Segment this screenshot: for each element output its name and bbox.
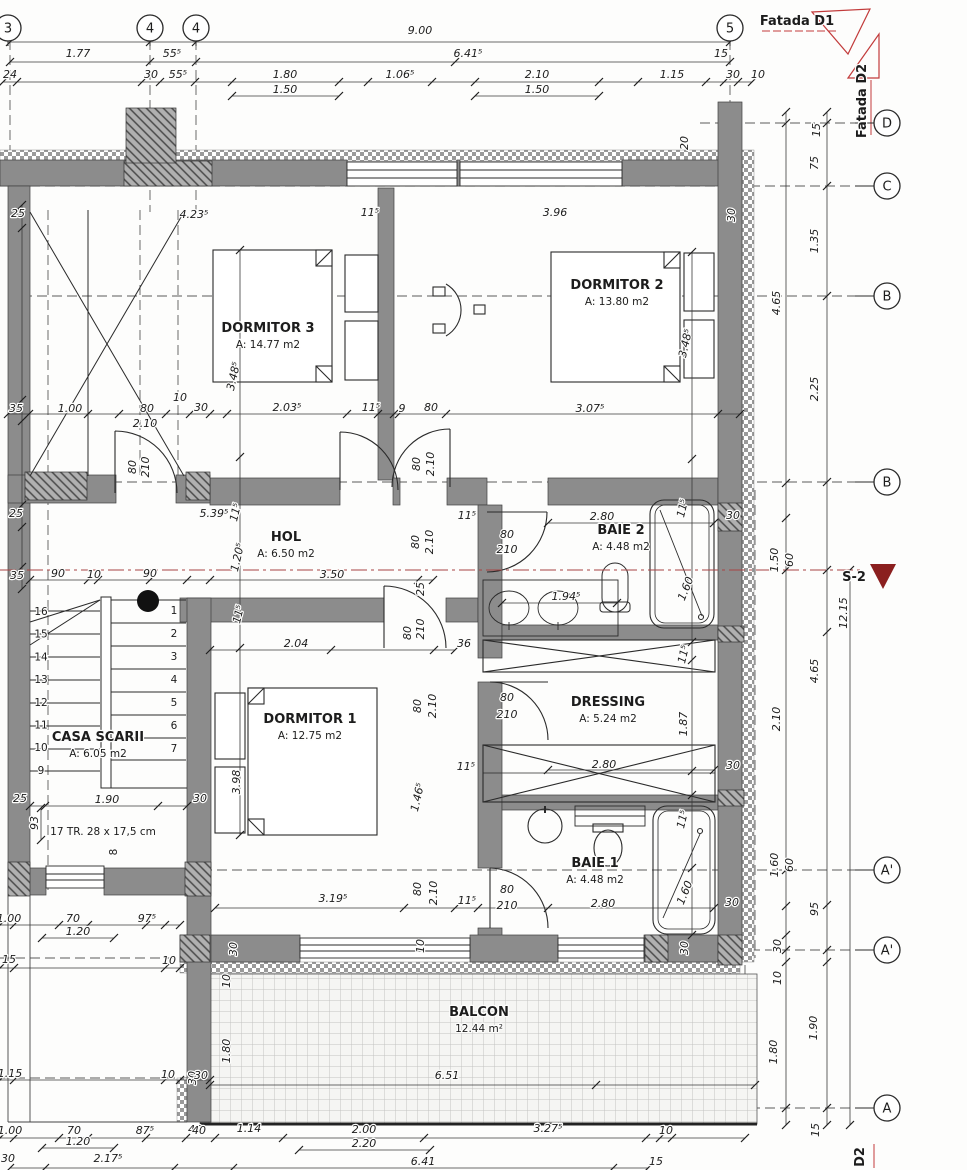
dim-label: 1.80 [220,1039,233,1064]
room-area-label: A: 6.50 m2 [257,548,315,560]
dim-label: 80 [500,883,514,896]
dim-label: 30 [678,941,691,955]
bed-dormitor-2 [551,252,714,382]
dim-label: 2.10 [424,452,437,477]
dim-label: 80 [500,528,514,541]
dim-label: 36 [457,637,471,650]
dim-label: 9.00 [408,24,433,37]
window-bottom-right [558,938,644,958]
dim-label: 2.25 [808,377,821,402]
dim-label: 11⁵ [674,498,691,519]
dim-label: 10 [771,971,784,985]
dim-label: 3.27⁵ [534,1122,563,1135]
stair-number: 14 [34,651,48,663]
dim-label: 15 [810,123,823,137]
dim-label: 20 [678,136,691,150]
dim-label: 210 [497,899,518,912]
dim-label: 35 [10,569,24,582]
grid-bubble-label: B [883,290,892,305]
dim-label: 1.20 [66,1135,91,1148]
dim-label: 5.39⁵ [200,507,229,520]
dim-tick [41,1164,49,1170]
grid-bubble-label: D [882,117,892,132]
dim-label: 87⁵ [136,1124,154,1137]
dim-label: 11⁵ [361,206,379,219]
dim-label: 15 [714,47,728,60]
dim-label: 9 [399,402,406,415]
stair-number: 16 [34,606,48,618]
room-label: DRESSING [571,695,645,710]
furniture [213,250,715,934]
room-label: BAIE 2 [597,523,644,538]
floor-plan-drawing: 9.001.7755⁵6.41⁵15243055⁵1.801.06⁵2.101.… [0,0,967,1170]
dim-label: 1.00 [58,402,83,415]
dim-label: 11⁵ [362,401,380,414]
dim-label: 4.65 [770,291,783,316]
dim-label: 80 [500,691,514,704]
stair-number: 5 [171,697,178,709]
room-label: DORMITOR 2 [570,278,663,293]
section-d2-label: D2 [853,1147,868,1167]
dim-label: 30 [725,208,738,222]
grid-bubble-label: A' [881,944,893,959]
dim-label: 6.51 [435,1069,460,1082]
balcony-door-window [300,938,470,958]
stair-number: 3 [171,651,178,663]
dim-label: 30 [726,759,740,772]
dim-label: 1.90 [95,793,120,806]
dim-label: 1.06⁵ [386,68,415,81]
sink-baie-1 [528,806,562,843]
dim-label: 2.10 [770,707,783,732]
fatada-d1-label: Fatada D1 [760,14,834,29]
dim-label: 2.80 [592,758,617,771]
dim-label: 2.10 [426,694,439,719]
dim-label: 55⁵ [163,47,181,60]
grid-bubble-label: A' [881,864,893,879]
dim-label: 1.80 [767,1040,780,1065]
fatada-d2-label: Fatada D2 [855,64,870,138]
dim-label: 2.10 [133,417,158,430]
dim-label: 2.00 [352,1123,377,1136]
dim-label: 60 [783,553,796,567]
stairs-area-label: A: 6.05 m2 [69,748,127,760]
room-label: DORMITOR 1 [263,712,356,727]
section-triangle-s2 [870,564,896,589]
room-area-label: A: 13.80 m2 [585,296,649,308]
dim-label: 3.19⁵ [319,892,348,905]
dim-label: 11⁵ [457,760,475,773]
terrace-outline [8,895,187,1122]
dim-label: 35 [9,402,23,415]
stair-number: 7 [171,743,178,755]
room-label: DORMITOR 3 [221,321,314,336]
dim-label: 1.87 [677,712,690,737]
dim-label: 1.80 [273,68,298,81]
balcony-floor [200,974,757,1124]
dim-label: 10 [162,954,176,967]
dim-label: 1.50 [768,548,781,573]
desk-chair [433,284,485,336]
grid-bubble-label: 4 [146,22,154,37]
grid-bubble-label: B [883,476,892,491]
grid-bubble-label: 3 [4,22,12,37]
dim-label: 15 [809,1123,822,1137]
dim-label: 70 [66,912,80,925]
room-area-label: A: 14.77 m2 [236,339,300,351]
dim-label: 30 [194,401,208,414]
dim-label: 10 [751,68,765,81]
dim-label: 80 [411,882,424,896]
dim-label: 30 [726,509,740,522]
dim-label: 15 [649,1155,663,1168]
dim-label: 15 [2,953,16,966]
dim-label: 210 [497,708,518,721]
dim-label: 11⁵ [674,809,691,830]
dim-label: 1.15 [660,68,685,81]
dim-label: 25 [414,582,427,596]
room-label: BAIE 1 [571,856,618,871]
door-baie-1 [490,868,548,928]
dim-label: 3.98 [230,770,243,795]
stair-number: 1 [171,605,178,617]
dim-label: 80 [401,626,414,640]
dim-label: 11⁵ [458,509,476,522]
dim-label: 60 [783,858,796,872]
dim-label: 3.07⁵ [576,402,605,415]
stair-number: 6 [171,720,178,732]
dim-label: 2.04 [284,637,309,650]
grid-bubble-label: C [882,180,891,195]
dim-label: 1.77 [66,47,91,60]
window-top-left [347,162,457,186]
bed-dormitor-3 [213,250,378,382]
dim-label: 80 [126,460,139,474]
dim-label: 80 [140,402,154,415]
dim-label: 25 [9,507,23,520]
stair-number: 12 [34,697,47,709]
dim-label: 12.15 [837,597,850,629]
stair-number: 10 [34,742,47,754]
dim-label: 6.41⁵ [454,47,483,60]
bathtub-baie-2 [650,500,714,628]
stairs-note: 17 TR. 28 x 17,5 cm [50,826,156,838]
dim-label: 1.60 [768,853,781,878]
dim-label: 1.00 [0,1124,22,1137]
dim-label: 10 [220,974,233,988]
room-area-label: A: 4.48 m2 [592,541,650,553]
window-stairs [46,866,104,888]
stair-number: 11 [34,720,47,732]
dim-label: 3.96 [543,206,568,219]
dim-tick [170,1164,178,1170]
dim-label: 210 [139,457,152,478]
dim-label: 1.90 [807,1016,820,1041]
room-area-label: 12.44 m² [455,1023,503,1035]
dim-label: 97⁵ [138,912,156,925]
dim-label: 10 [87,568,101,581]
stair-number: 8 [108,849,120,856]
dim-label: 2.10 [525,68,550,81]
dim-label: 25 [11,207,25,220]
void-cross [30,210,184,476]
dim-label: 4.23⁵ [180,208,209,221]
window-top-right [460,162,622,186]
dim-label: 1.94⁵ [552,590,581,603]
dim-label: 1.15 [0,1067,22,1080]
stair-start-dot [137,590,159,612]
stair-number: 9 [38,765,45,777]
dim-label: 80 [424,401,438,414]
dim-label: 30 [227,942,240,956]
dim-label: 2.80 [591,897,616,910]
dim-label: 3.50 [320,568,345,581]
dim-label: 24 [3,68,17,81]
dim-label: 1.50 [273,83,298,96]
grid-bubble-label: A [883,1102,892,1117]
dim-label: 90 [143,567,157,580]
dim-label: 10 [173,391,187,404]
dim-label: 25 [13,792,27,805]
dim-tick [609,1164,617,1170]
room-area-label: A: 5.24 m2 [579,713,637,725]
dim-label: 1.00 [0,912,21,925]
dim-label: 11⁵ [227,502,244,523]
dim-label: 30 [144,68,158,81]
grid-bubble-label: 5 [726,22,734,37]
stair-number: 2 [171,628,178,640]
dim-label: 4.65 [808,659,821,684]
dim-label: 95 [808,902,821,916]
stair-number: 15 [34,629,47,641]
dim-label: 80 [409,535,422,549]
dim-label: 93 [28,816,41,830]
dim-label: 10 [161,1068,175,1081]
dim-label: 75 [808,156,821,170]
dim-tick [229,1164,237,1170]
dim-label: 2.03⁵ [273,401,302,414]
room-label: BALCON [449,1005,509,1020]
dim-label: 1.14 [237,1122,262,1135]
dim-label: 1.50 [525,83,550,96]
dim-label: 2.20 [352,1137,377,1150]
dim-label: 30 [194,1069,208,1082]
dim-label: 30 [1,1152,15,1165]
dim-label: 30 [726,68,740,81]
dim-label: 10 [659,1124,673,1137]
dim-label: 1.20⁵ [228,542,247,573]
stair-number: 13 [34,674,47,686]
room-area-label: A: 12.75 m2 [278,730,342,742]
dim-label: 90 [51,567,65,580]
room-label: HOL [271,530,301,545]
dim-label: 30 [725,896,739,909]
stair-number: 4 [171,674,178,686]
dim-label: 80 [411,699,424,713]
dim-label: 80 [410,457,423,471]
dim-label: 11⁵ [458,894,476,907]
section-s2-label: S-2 [842,570,866,585]
stairs-label: CASA SCARII [52,730,144,745]
dim-label: 2.10 [423,530,436,555]
grid-bubble-label: 4 [192,22,200,37]
dim-label: 1.35 [808,229,821,254]
dim-label: 55⁵ [169,68,187,81]
dim-label: 2.80 [590,510,615,523]
dim-label: 6.41 [411,1155,436,1168]
floor-plan-canvas: 9.001.7755⁵6.41⁵15243055⁵1.801.06⁵2.101.… [0,0,967,1170]
dim-label: 40 [192,1124,206,1137]
dim-label: 11⁵ [675,644,692,665]
dim-label: 1.60 [675,575,696,603]
room-area-label: A: 4.48 m2 [566,874,624,886]
dim-label: 2.10 [427,881,440,906]
dim-label: 210 [497,543,518,556]
dim-label: 30 [193,792,207,805]
bed-dormitor-1 [215,688,377,835]
dim-label: 10 [414,939,427,953]
dim-label: 30 [771,939,784,953]
dim-label: 1.46⁵ [408,782,427,813]
dim-label: 210 [414,619,427,640]
wardrobe-dressing-bottom [483,745,715,802]
dim-label: 1.20 [66,925,91,938]
dim-label: 2.17⁵ [94,1152,123,1165]
